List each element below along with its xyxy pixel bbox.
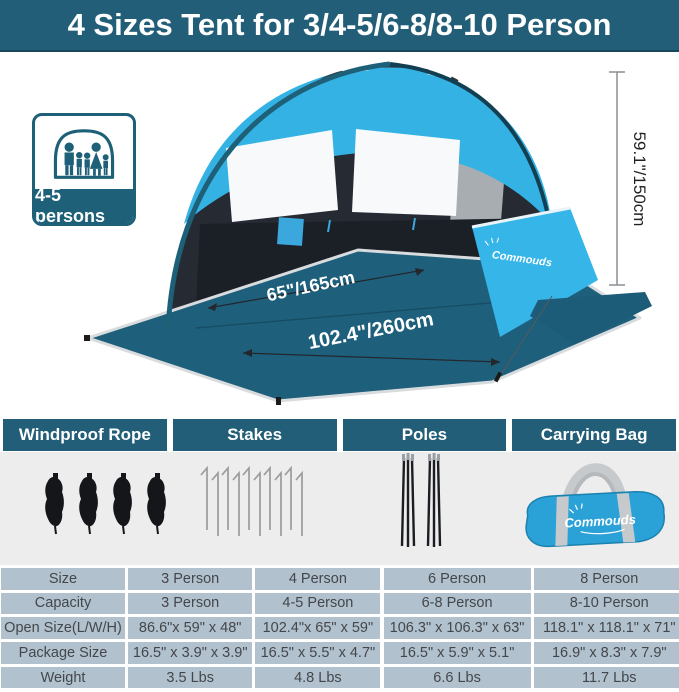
family-in-tent-icon	[35, 116, 133, 189]
table-cell: 8-10 Person	[534, 593, 679, 615]
height-measure-line	[609, 72, 625, 285]
table-cell: 16.9" x 8.3" x 7.9"	[534, 642, 679, 664]
table-cell: 8 Person	[534, 568, 679, 590]
table-cell: 3 Person	[128, 593, 252, 615]
table-cell: 106.3" x 106.3" x 63"	[384, 617, 531, 639]
table-cell: 11.7 Lbs	[534, 667, 679, 689]
stakes-illustration	[201, 468, 302, 536]
height-dimension-label: 59.1"/150cm	[630, 132, 649, 227]
tent-diagram: 59.1"/150cm	[0, 52, 679, 418]
rope-bundles-illustration	[45, 473, 166, 534]
table-cell: 6-8 Person	[384, 593, 531, 615]
table-cell: 16.5" x 3.9" x 3.9"	[128, 642, 252, 664]
tent-illustration-section: 59.1"/150cm	[0, 52, 679, 418]
banner-title: 4 Sizes Tent for 3/4-5/6-8/8-10 Person	[68, 7, 612, 43]
table-row-label: Size	[1, 568, 125, 590]
table-cell: 86.6"x 59" x 48"	[128, 617, 252, 639]
table-cell: 118.1" x 118.1" x 71"	[534, 617, 679, 639]
title-banner: 4 Sizes Tent for 3/4-5/6-8/8-10 Person	[0, 0, 679, 52]
table-cell: 102.4"x 65" x 59"	[255, 617, 380, 639]
poles-illustration	[402, 453, 440, 547]
table-cell: 16.5" x 5.5" x 4.7"	[255, 642, 380, 664]
header-windproof-rope: Windproof Rope	[3, 419, 167, 451]
capacity-badge: 4-5 persons	[32, 113, 136, 226]
table-cell: 3 Person	[128, 568, 252, 590]
header-poles: Poles	[343, 419, 507, 451]
table-cell: 6.6 Lbs	[384, 667, 531, 689]
header-stakes: Stakes	[173, 419, 337, 451]
table-cell: 6 Person	[384, 568, 531, 590]
table-cell: 16.5" x 5.9" x 5.1"	[384, 642, 531, 664]
table-cell: 4-5 Person	[255, 593, 380, 615]
table-row-label: Weight	[1, 667, 125, 689]
interior-pocket	[277, 217, 304, 246]
accessory-images-panel: Commouds	[0, 452, 679, 565]
table-row-label: Capacity	[1, 593, 125, 615]
spec-table: Size 3 Person 4 Person 6 Person 8 Person…	[0, 565, 679, 692]
accessory-headers: Windproof Rope Stakes Poles Carrying Bag	[0, 418, 679, 452]
table-cell: 4 Person	[255, 568, 380, 590]
capacity-badge-label: 4-5 persons	[35, 189, 133, 223]
table-cell: 3.5 Lbs	[128, 667, 252, 689]
table-row-label: Open Size(L/W/H)	[1, 617, 125, 639]
table-cell: 4.8 Lbs	[255, 667, 380, 689]
carrying-bag-illustration: Commouds	[524, 468, 665, 548]
header-carrying-bag: Carrying Bag	[512, 419, 676, 451]
mesh-window-right	[352, 129, 460, 216]
table-row-label: Package Size	[1, 642, 125, 664]
